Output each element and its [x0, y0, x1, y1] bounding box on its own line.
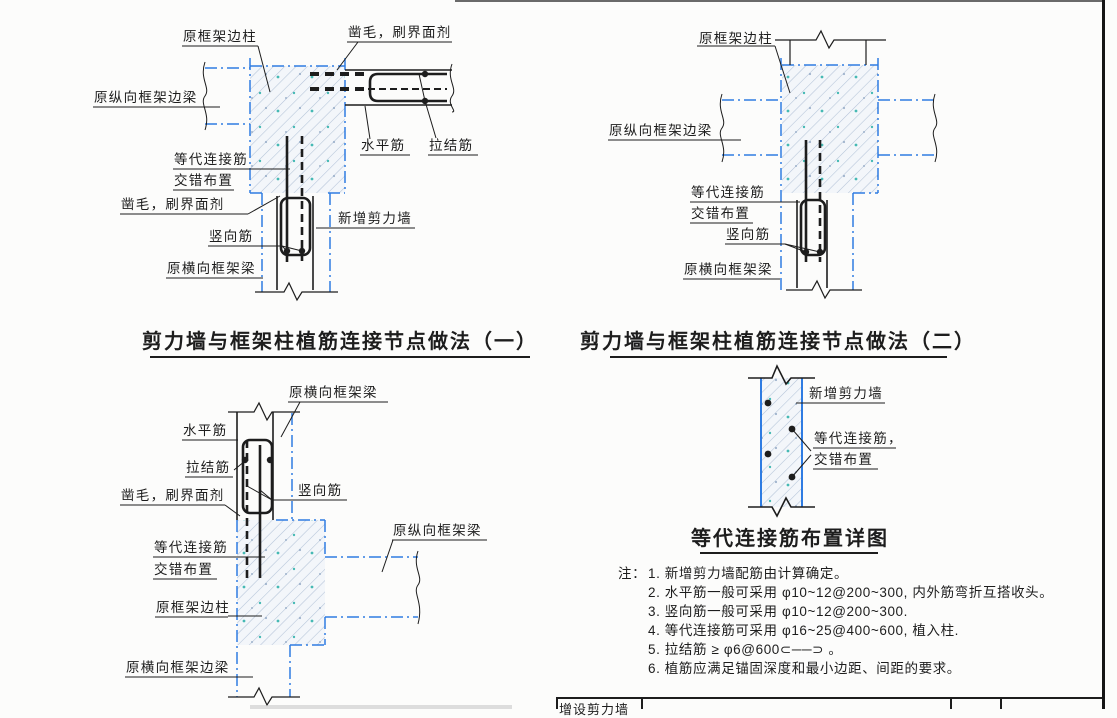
- break-mark: [203, 62, 206, 130]
- note-item-3: 3. 竖向筋一般可采用 φ10~12@200~300.: [648, 600, 908, 620]
- title-block-divider: [641, 698, 643, 709]
- diagram3-joint-detail-3: 原横向框架梁 水平筋 拉结筋 凿毛，刷界面剂 竖向筋 等代连接筋 交错布置 原框…: [120, 385, 487, 705]
- note-item-5: 5. 拉结筋 ≥ φ6@600⊂──⊃ 。: [648, 638, 843, 658]
- sheet-border-right: [1102, 0, 1105, 709]
- wall-stirrup: [801, 200, 825, 255]
- break-mark: [228, 403, 300, 420]
- label-equivalent-bar-2: 交错布置: [154, 561, 213, 577]
- wall-stirrup: [243, 440, 272, 513]
- label-equivalent-bar-2: 交错布置: [814, 451, 873, 467]
- label-new-shear-wall: 新增剪力墙: [338, 211, 412, 226]
- label-equivalent-bar-1: 等代连接筋: [691, 184, 765, 200]
- equivalent-bar-dot: [765, 400, 772, 407]
- break-mark: [228, 688, 300, 705]
- note-item-4: 4. 等代连接筋可采用 φ16~25@400~600, 植入柱.: [648, 619, 959, 639]
- label-equivalent-bar-1: 等代连接筋，: [814, 430, 903, 446]
- tie-bar-dot: [267, 457, 273, 463]
- label-transverse-frame-beam: 原横向框架梁: [684, 262, 773, 277]
- label-horizontal-bar: 水平筋: [361, 137, 405, 153]
- column-hatch: [237, 520, 325, 645]
- label-original-frame-edge-column: 原框架边柱: [183, 29, 257, 44]
- notes-prefix: 注：: [618, 562, 646, 582]
- label-original-frame-edge-column: 原框架边柱: [156, 600, 230, 615]
- wall-hatch: [761, 378, 802, 507]
- label-vertical-bar: 竖向筋: [298, 482, 342, 498]
- label-transverse-edge-beam-bottom: 原横向框架边梁: [126, 660, 230, 675]
- label-longitudinal-edge-beam: 原纵向框架边梁: [94, 90, 198, 105]
- note-item-6: 6. 植筋应满足锚固深度和最小边距、间距的要求。: [648, 657, 961, 677]
- label-equivalent-bar-2: 交错布置: [691, 205, 750, 221]
- diagram2-title: 剪力墙与框架柱植筋连接节点做法（二）: [580, 329, 976, 353]
- label-horizontal-bar: 水平筋: [183, 422, 227, 438]
- diagram3-clipped-title: [250, 705, 512, 709]
- label-vertical-bar: 竖向筋: [209, 228, 253, 244]
- label-longitudinal-frame-beam: 原纵向框架梁: [393, 523, 482, 538]
- sheet-border-top: [455, 0, 1103, 2]
- label-chisel-interface-top: 凿毛，刷界面剂: [348, 25, 452, 40]
- beam-rebar-u: [370, 74, 447, 101]
- label-equivalent-bar-1: 等代连接筋: [154, 539, 228, 555]
- label-chisel-interface: 凿毛，刷界面剂: [121, 488, 225, 503]
- label-equivalent-bar-1: 等代连接筋: [174, 151, 248, 167]
- label-new-shear-wall: 新增剪力墙: [809, 386, 883, 401]
- title-block-divider: [950, 698, 952, 709]
- tie-bar-dot: [422, 71, 428, 77]
- diagram4-equivalent-bar-layout: 新增剪力墙 等代连接筋， 交错布置 等代连接筋布置详图: [691, 366, 903, 553]
- label-tie-bar: 拉结筋: [186, 459, 230, 475]
- label-longitudinal-edge-beam: 原纵向框架边梁: [609, 123, 713, 138]
- diagram1-title: 剪力墙与框架柱植筋连接节点做法（一）: [142, 329, 538, 353]
- label-transverse-frame-beam: 原横向框架梁: [167, 261, 256, 276]
- diagram1-joint-detail-1: 原框架边柱 凿毛，刷界面剂 原纵向框架边梁 等代连接筋 交错布置 凿毛，刷界面剂…: [93, 25, 538, 357]
- label-equivalent-bar-2: 交错布置: [174, 172, 233, 188]
- equivalent-bar-dot: [765, 451, 772, 458]
- column-hatch: [782, 65, 878, 193]
- column-hatch: [250, 66, 345, 193]
- title-block-divider: [556, 698, 558, 709]
- label-tie-bar: 拉结筋: [429, 137, 473, 153]
- break-mark: [255, 283, 338, 300]
- label-vertical-bar: 竖向筋: [726, 226, 770, 242]
- title-block-divider: [1000, 698, 1002, 709]
- label-transverse-frame-beam-top: 原横向框架梁: [289, 385, 378, 400]
- diagram2-joint-detail-2: 原框架边柱 原纵向框架边梁 等代连接筋 交错布置 竖向筋 原横向框架梁 剪力墙与…: [580, 31, 976, 357]
- note-item-2: 2. 水平筋一般可采用 φ10~12@200~300, 内外筋弯折互搭收头。: [648, 581, 1053, 601]
- drawing-sheet: 原框架边柱 凿毛，刷界面剂 原纵向框架边梁 等代连接筋 交错布置 凿毛，刷界面剂…: [0, 0, 1117, 709]
- break-mark: [416, 551, 419, 624]
- diagram4-title: 等代连接筋布置详图: [691, 526, 889, 550]
- note-item-1: 1. 新增剪力墙配筋由计算确定。: [648, 562, 848, 582]
- label-original-frame-edge-column: 原框架边柱: [699, 31, 773, 46]
- label-chisel-interface-left: 凿毛，刷界面剂: [121, 197, 225, 212]
